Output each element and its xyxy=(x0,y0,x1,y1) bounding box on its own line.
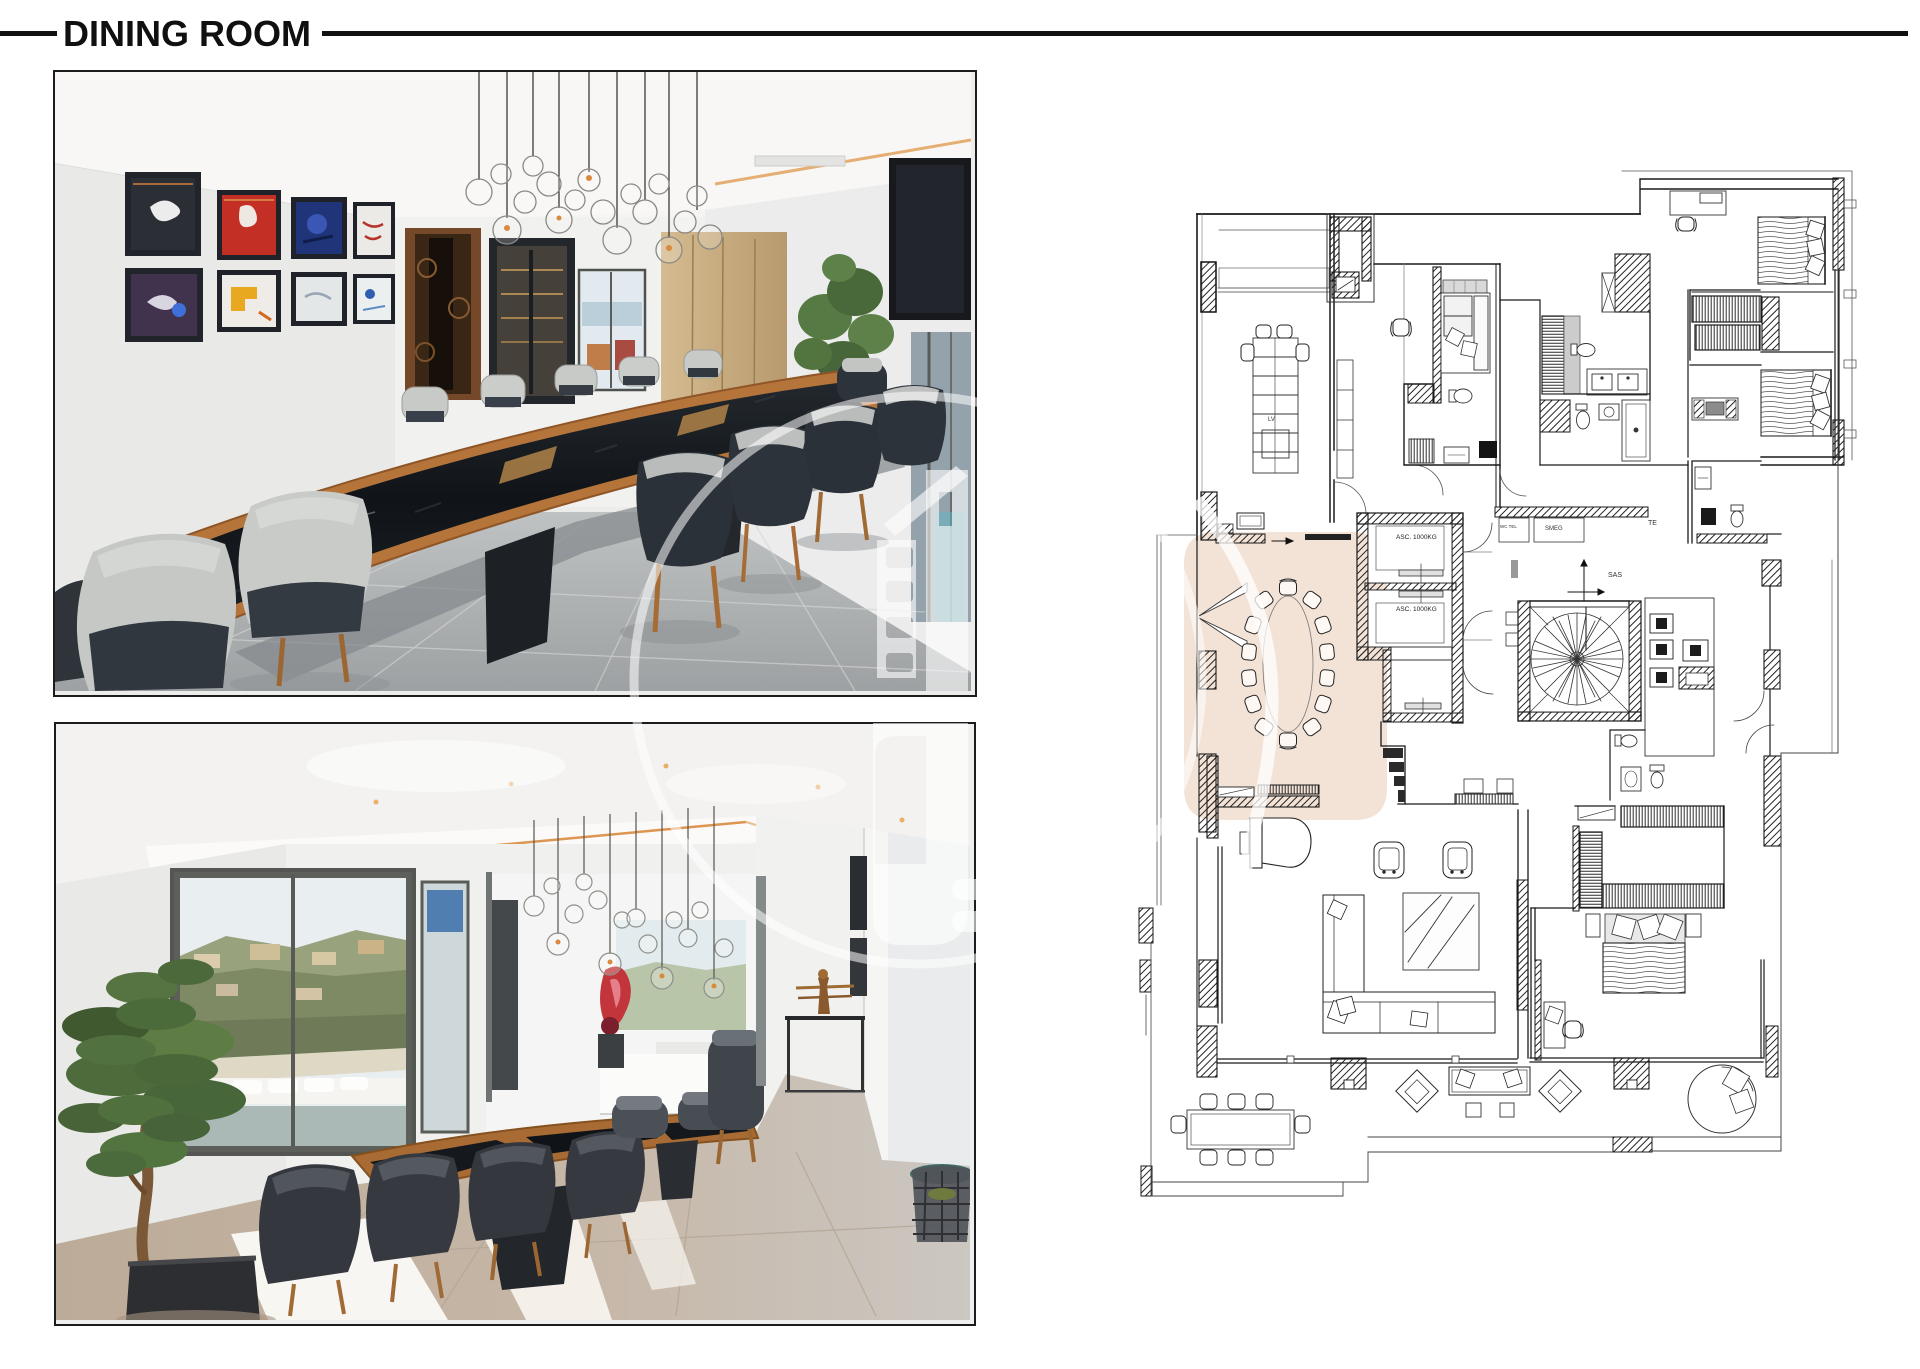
svg-text:LV: LV xyxy=(1268,417,1275,423)
svg-text:SMEG: SMEG xyxy=(1545,526,1563,532)
svg-text:ASC. 1000KG: ASC. 1000KG xyxy=(1396,606,1437,613)
svg-text:TE: TE xyxy=(1648,520,1657,527)
svg-text:SAS: SAS xyxy=(1608,572,1622,579)
svg-text:WC TEL: WC TEL xyxy=(1500,524,1517,529)
svg-text:ASC. 1000KG: ASC. 1000KG xyxy=(1396,534,1437,541)
